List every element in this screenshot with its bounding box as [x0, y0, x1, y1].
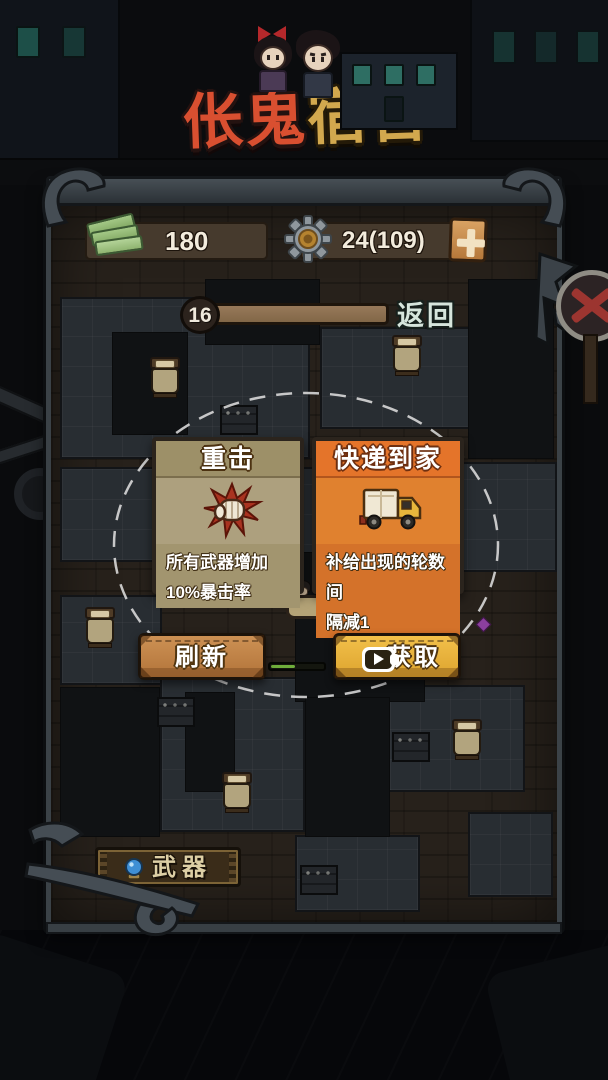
map-room — [468, 812, 553, 897]
dormitory-map-panel: 180 24(109) — [51, 206, 557, 922]
refresh-cooldown-bar — [268, 662, 326, 671]
money-value: 180 — [165, 226, 208, 256]
money-icon — [85, 212, 149, 264]
game-title-part1: 伥鬼 — [182, 85, 308, 156]
building-silhouette — [470, 0, 608, 142]
upgrade-card-delivery[interactable]: 快递到家 补给出现的轮数间 隔减1 — [312, 437, 464, 594]
fist-impact-icon — [200, 480, 264, 540]
card-description: 补给出现的轮数间 隔减1 — [316, 544, 460, 638]
refresh-button-label: 刷新 — [141, 636, 263, 677]
weapons-button[interactable]: 武器 — [95, 847, 241, 887]
wave-progress-bar — [201, 303, 389, 325]
logo-building — [340, 52, 458, 130]
delivery-truck-icon — [356, 486, 426, 532]
purple-pickup-sprite — [476, 617, 492, 633]
building-silhouette — [0, 0, 120, 162]
refresh-button[interactable]: 刷新 — [138, 633, 266, 680]
back-button-label: 返回 — [397, 301, 457, 331]
bed-sprite — [85, 607, 115, 649]
logo-character-girl — [250, 28, 296, 94]
card-desc-line1: 所有武器增加 — [166, 548, 290, 578]
shelf-sprite — [157, 697, 195, 727]
weapons-button-label: 武器 — [132, 850, 232, 886]
map-wall — [468, 279, 554, 459]
shelf-sprite — [300, 865, 338, 895]
card-title: 重击 — [156, 441, 300, 478]
gear-icon — [283, 214, 333, 264]
bed-sprite — [150, 357, 180, 399]
map-wall — [60, 687, 160, 837]
video-ad-icon — [362, 647, 395, 672]
wave-number: 16 — [188, 304, 211, 327]
card-description: 所有武器增加 10%暴击率 — [156, 544, 300, 608]
claim-button[interactable]: 获取 — [333, 633, 461, 680]
bed-sprite — [452, 719, 482, 761]
upgrade-card-heavy-strike[interactable]: 重击 所有武器增加 10%暴击率 — [152, 437, 304, 594]
back-button[interactable]: 返回 — [397, 294, 457, 333]
street-ground — [0, 158, 608, 185]
game-screen: 伥鬼宿舍 — [0, 0, 608, 1080]
sign-post — [583, 334, 598, 404]
card-desc-line1: 补给出现的轮数间 — [326, 548, 450, 608]
map-wall — [305, 697, 390, 837]
street-backdrop-bottom — [0, 930, 608, 1080]
bed-sprite — [392, 335, 422, 377]
card-desc-line2: 10%暴击率 — [166, 578, 290, 608]
gear-parts-value: 24(109) — [342, 227, 425, 254]
logo-character-boy — [292, 30, 344, 100]
card-title: 快递到家 — [316, 441, 460, 478]
shelf-sprite — [220, 405, 258, 435]
bed-sprite — [222, 772, 252, 814]
wave-number-badge: 16 — [180, 296, 220, 334]
no-entry-sign — [556, 270, 608, 342]
add-gear-parts-button[interactable] — [448, 217, 488, 262]
shelf-sprite — [392, 732, 430, 762]
